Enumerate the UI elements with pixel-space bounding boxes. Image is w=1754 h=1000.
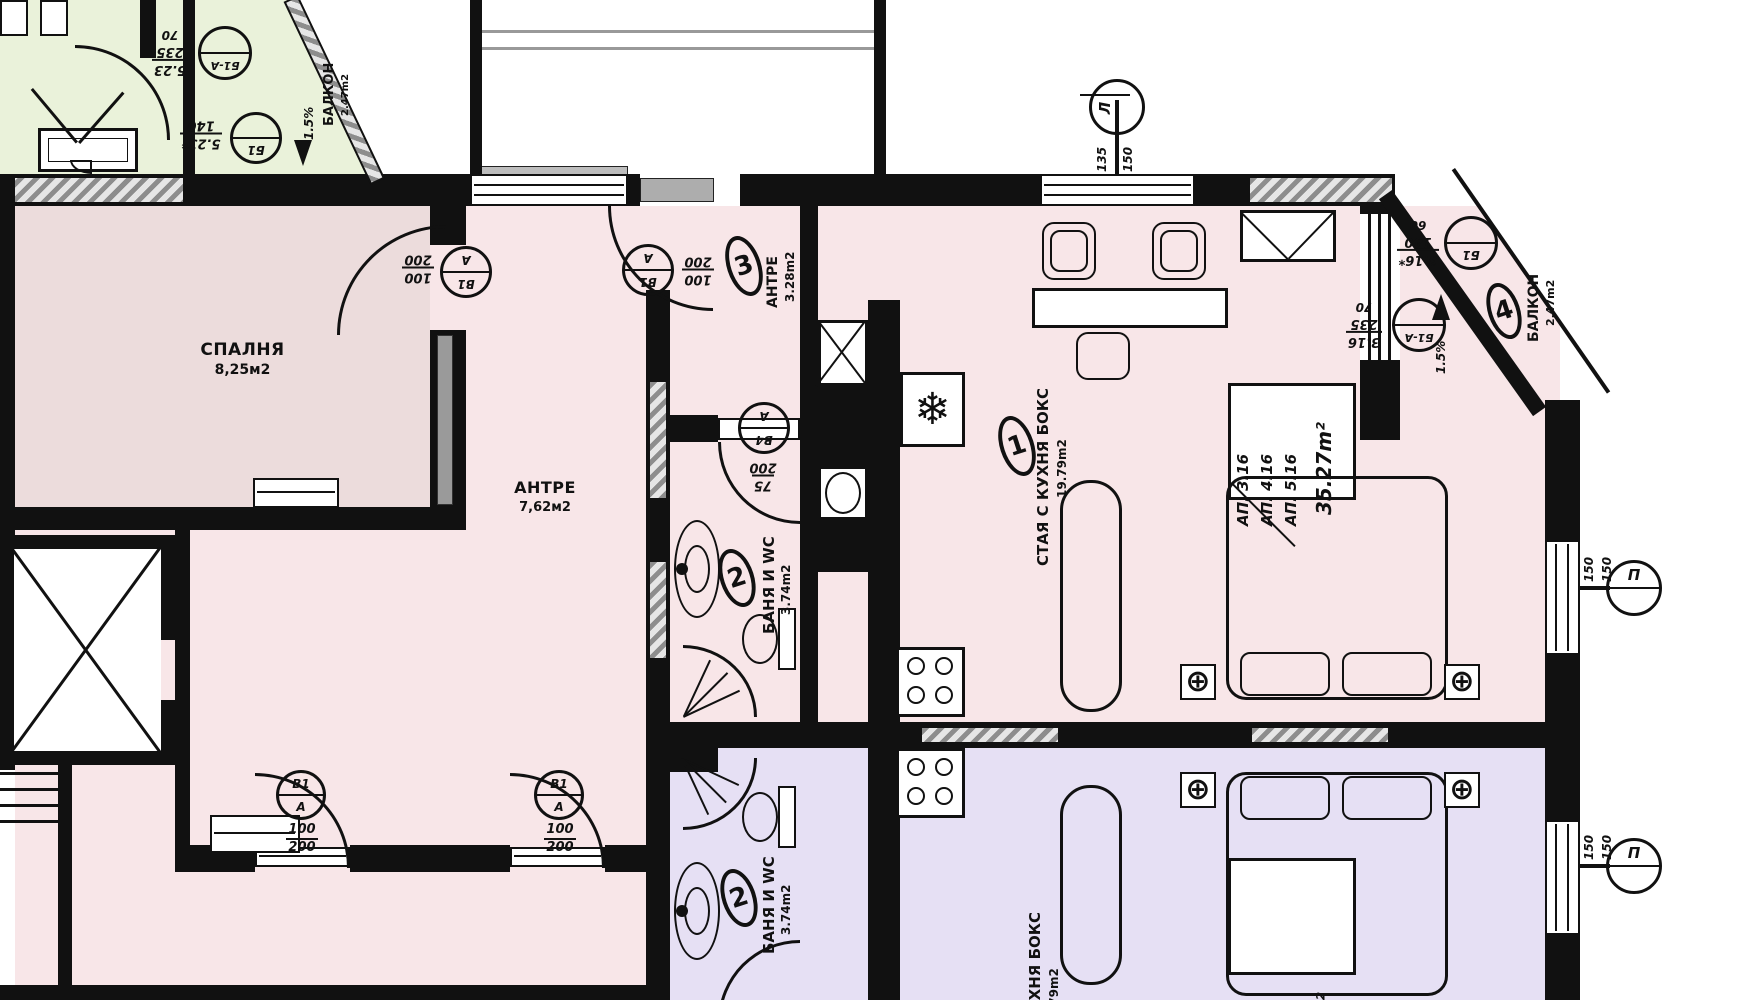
ap15-line3: 15 (1282, 958, 1300, 1000)
balcony-slab-hatch (1248, 176, 1394, 204)
desk (1032, 288, 1228, 328)
green-notch-1 (0, 0, 28, 36)
bedroom-area-label: 8,25м2 (165, 362, 320, 378)
living16-label: СТАЯ С КУХНЯ БОКС (1034, 328, 1052, 566)
green-notch-2 (40, 0, 68, 36)
top-window-dim-2: 150 (1121, 132, 1135, 172)
pillow (1342, 652, 1432, 696)
right-window1-marker: П (1606, 560, 1662, 616)
living15-label: СТАЯ С КУХНЯ БОКС (1026, 852, 1044, 1000)
right-window2-dim-2: 150 (1600, 816, 1614, 860)
snowflake-icon: ❄ (914, 388, 951, 432)
top-window-marker: Л (1089, 79, 1145, 135)
bedroom-door-dimension: 100 200 (398, 250, 438, 285)
bedroom-label: СПАЛНЯ (165, 340, 320, 360)
elevator-wall-right-a (161, 535, 175, 640)
bottom-wall-b (350, 845, 510, 872)
bath15-area-label: 3.74m2 (779, 863, 793, 935)
bottom-wall-c (605, 845, 660, 872)
bottom-band-wall (0, 985, 648, 1000)
balcony16-label: БАЛКОН (1526, 250, 1542, 342)
floor-plan: ❄ АП. 3.16 АП. 4.16 АП. (0, 0, 1754, 1000)
right-slope-label: 1.5% (1434, 326, 1448, 374)
hall-label: АНТРЕ (470, 478, 620, 497)
green-b1-marker: Б1 (230, 112, 282, 164)
right-window1 (1545, 540, 1580, 655)
pillow (1342, 776, 1432, 820)
green-b1a-marker: Б1-А (198, 26, 252, 80)
bath15-label: БАНЯ И WC (760, 846, 778, 954)
bath16-label: БАНЯ И WC (760, 526, 778, 634)
corridor-wall (175, 530, 190, 872)
bath16-area-label: 3.74m2 (779, 543, 793, 615)
elevator-wall-left (0, 535, 14, 765)
green-slope-arrow (294, 140, 312, 166)
lower-right-door-dimension: 100 200 (540, 822, 580, 857)
toilet-tank-lower (778, 786, 796, 848)
kitchen-block-2 (818, 520, 868, 572)
top-stub-wall-2 (874, 0, 886, 174)
ap15-line1: 15 (1234, 958, 1252, 1000)
stove-lower (896, 748, 965, 818)
right-window2-dim-1: 150 (1582, 816, 1596, 860)
right-window1-dim-1: 150 (1582, 538, 1596, 582)
top-left-slab-hatch (0, 176, 185, 204)
elevator-wall-right-b (161, 700, 175, 765)
right-b1a-dimension: 3.16 235 70 (1340, 300, 1388, 349)
side-table (1240, 210, 1336, 262)
bath-door-dimension: 75 200 (742, 458, 784, 493)
green-b1a-dimension: 5.23 235 70 (146, 28, 194, 77)
right-b1-marker: Б1 (1444, 216, 1498, 270)
bedroom-door-leaf (437, 335, 453, 505)
bedroom-tv-cabinet (253, 478, 339, 508)
junction-symbol: ⊕ (1180, 664, 1216, 700)
pillow (1240, 652, 1330, 696)
kitchen-sink-bowl (825, 472, 861, 514)
bath-right-wall (800, 206, 818, 722)
bedroom-bottom-wall (0, 507, 430, 530)
peninsula-upper (1060, 480, 1122, 712)
fridge: ❄ (900, 372, 965, 447)
toilet-tank-upper (778, 608, 796, 670)
bedroom-door-marker: В1 А (440, 246, 492, 298)
elevator-wall-bottom (0, 751, 175, 765)
living15-area-label: 19.79m2 (1047, 925, 1061, 1000)
elevator-wall-top (0, 535, 175, 549)
lower-left-door-dimension: 100 200 (282, 822, 322, 857)
balcony16-area-label: 2.47m2 (1544, 262, 1557, 326)
stair-wall (58, 765, 72, 1000)
right-window2 (1545, 820, 1580, 935)
top-stub-wall-1 (470, 0, 482, 174)
window2 (1040, 174, 1195, 206)
divider-wall (646, 722, 1560, 748)
green-slope-label: 1.5% (302, 96, 316, 140)
toilet-lower (742, 792, 778, 842)
ap15-line2: 15 (1258, 958, 1276, 1000)
entry16-label: АНТРЕ (765, 228, 781, 308)
chair-3 (1076, 332, 1130, 380)
entry-door-dimension: 100 200 (678, 252, 718, 287)
junction-symbol: ⊕ (1444, 664, 1480, 700)
green-balcony-label: БАЛКОН (322, 46, 337, 126)
hall-area-label: 7,62м2 (470, 500, 620, 515)
bath-top-wall (670, 415, 718, 442)
stove-upper (896, 647, 965, 717)
lower-left-door-marker: В1 А (276, 770, 326, 820)
top-window-dim-1: 135 (1095, 132, 1109, 172)
green-b1-dimension: 5.23* 140 (178, 116, 224, 151)
lower-right-door-marker: В1 А (534, 770, 584, 820)
right-window1-dim-2: 150 (1600, 538, 1614, 582)
living16-area-label: 19.79m2 (1055, 396, 1069, 498)
bath-door-marker: В4 А (738, 402, 790, 454)
right-window2-marker: П (1606, 838, 1662, 894)
entry-door-sill (640, 178, 714, 202)
window1 (470, 174, 628, 206)
junction-symbol: ⊕ (1444, 772, 1480, 808)
entry16-area-label: 3.28m2 (783, 236, 797, 302)
entry-door-marker: В1 А (622, 244, 674, 296)
pillow (1240, 776, 1330, 820)
kitchen-block-1 (818, 386, 868, 466)
right-slope-arrow (1432, 294, 1450, 320)
green-balcony-area-label: 2.47m2 (340, 56, 351, 116)
ap15-total: m² (1312, 952, 1336, 1000)
peninsula-lower (1060, 785, 1122, 985)
right-b1-dimension: 3.16* 140 60 (1394, 218, 1442, 267)
kitchen-counter-box (818, 320, 868, 386)
junction-symbol: ⊕ (1180, 772, 1216, 808)
